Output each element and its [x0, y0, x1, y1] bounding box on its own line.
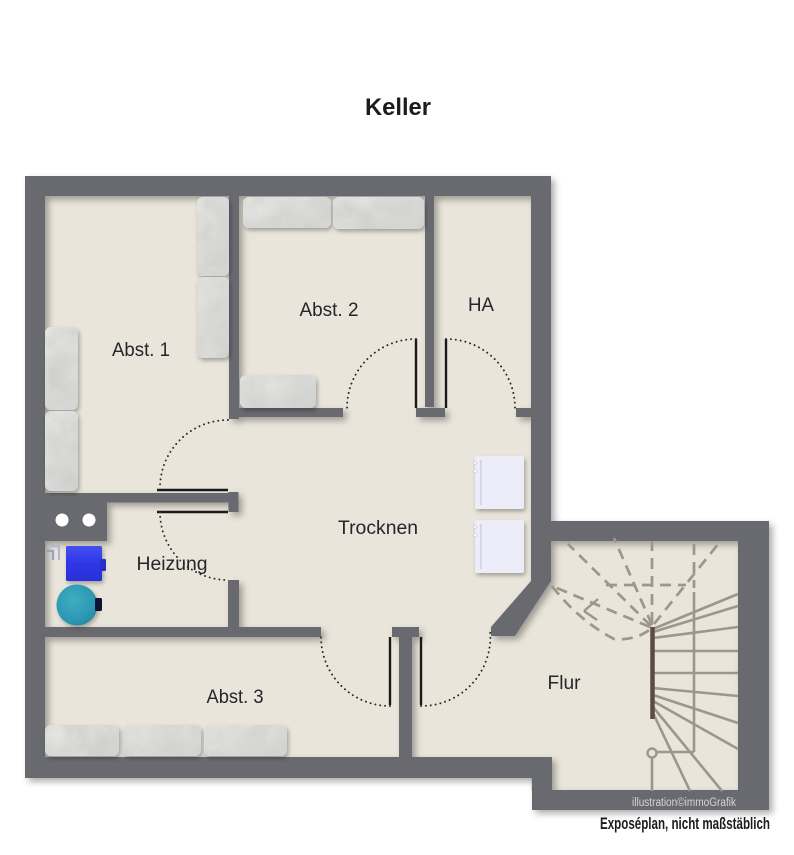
- svg-text:Abst. 3: Abst. 3: [207, 686, 264, 708]
- svg-text:Abst. 2: Abst. 2: [300, 299, 359, 321]
- svg-text:Abst. 1: Abst. 1: [112, 339, 170, 361]
- svg-text:HA: HA: [468, 294, 494, 316]
- svg-text:Heizung: Heizung: [137, 553, 208, 575]
- svg-text:illustration©immoGrafik: illustration©immoGrafik: [632, 797, 736, 809]
- svg-text:Flur: Flur: [548, 672, 581, 694]
- svg-text:Trocknen: Trocknen: [338, 517, 418, 539]
- svg-text:Keller: Keller: [365, 94, 431, 121]
- svg-text:Exposéplan, nicht maßstäblich: Exposéplan, nicht maßstäblich: [600, 814, 770, 833]
